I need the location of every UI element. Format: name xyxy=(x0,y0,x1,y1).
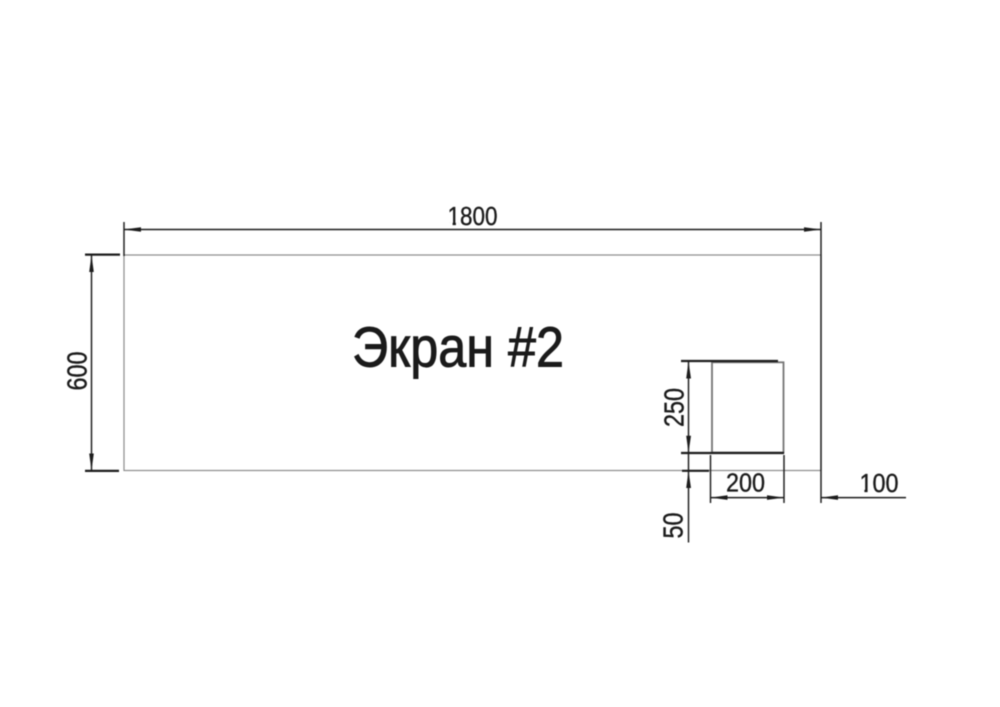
svg-text:600: 600 xyxy=(62,352,93,391)
svg-text:250: 250 xyxy=(659,388,690,427)
svg-text:1800: 1800 xyxy=(448,201,498,231)
svg-text:Экран #2: Экран #2 xyxy=(352,316,564,380)
svg-text:200: 200 xyxy=(726,468,765,498)
svg-text:100: 100 xyxy=(860,468,899,498)
svg-text:50: 50 xyxy=(658,513,689,539)
